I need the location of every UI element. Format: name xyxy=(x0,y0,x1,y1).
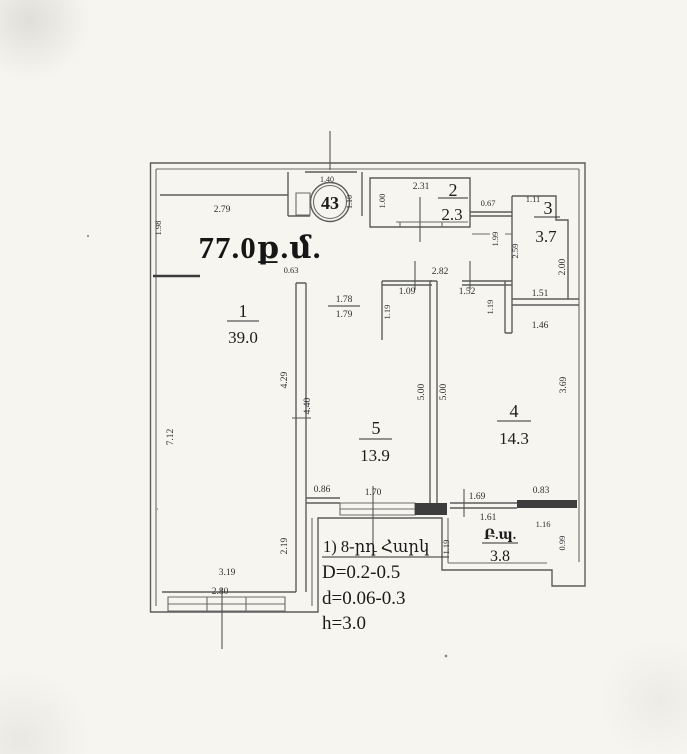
dim-balcony-left: 1.19 xyxy=(441,540,451,555)
dim-room4-bottom-right: 0.83 xyxy=(533,486,550,496)
dim-passage-right: 0.67 xyxy=(481,198,496,208)
dim-room5-bottom-left: 0.86 xyxy=(314,485,331,495)
dim-balcony-right: 0.99 xyxy=(557,536,567,551)
apartment-number: 43 xyxy=(321,193,339,213)
floor-plan: 43 77.0ք.մ. 1 39.0 2 2.3 3 3.7 4 14.3 5 … xyxy=(0,0,687,754)
dim-balcony-door-bottom: 1.61 xyxy=(480,513,497,523)
room3-area: 3.7 xyxy=(535,227,557,246)
room1-area: 39.0 xyxy=(228,328,258,347)
dim-room1-bottom: 3.19 xyxy=(219,568,236,578)
dim-door-width-a: 1.78 xyxy=(336,295,353,305)
room2-area: 2.3 xyxy=(441,205,462,224)
dim-room4-height: 5.00 xyxy=(439,383,449,400)
dim-room3-left-outer: 1.99 xyxy=(490,232,500,247)
dim-room2-left: 1.00 xyxy=(377,194,387,209)
note-d-upper: D=0.2-0.5 xyxy=(322,562,400,583)
dim-room1-top: 2.79 xyxy=(214,205,231,215)
room4-number: 4 xyxy=(510,401,519,421)
dim-room1-window: 2.80 xyxy=(212,587,229,597)
dim-balcony-top-right: 1.16 xyxy=(536,519,551,529)
dim-room5-height: 5.00 xyxy=(417,383,427,400)
dim-hall-width: 2.82 xyxy=(432,267,449,277)
room4-area: 14.3 xyxy=(499,429,529,448)
dim-room4-right: 3.69 xyxy=(559,376,569,393)
dim-room1-door: 0.63 xyxy=(284,265,299,275)
balcony-label: Բ.պ. xyxy=(484,527,516,542)
note-floor: 1) 8-րդ Հարկ xyxy=(323,537,429,556)
dim-room3-bottom: 1.51 xyxy=(532,289,549,299)
dim-door-width-b: 1.79 xyxy=(336,310,353,320)
total-area-title: 77.0ք.մ. xyxy=(199,230,322,265)
room1-number: 1 xyxy=(239,301,248,321)
dim-room5-window: 1.70 xyxy=(365,488,382,498)
dim-balcony-door-top: 1.69 xyxy=(469,492,486,502)
dim-room1-bottom-right: 2.19 xyxy=(280,537,290,554)
dim-left-wall: 7.12 xyxy=(166,428,176,445)
dim-room3-top: 1.11 xyxy=(526,194,541,204)
room2-number: 2 xyxy=(449,180,458,200)
dim-room4-top: 1.46 xyxy=(532,321,549,331)
dim-jamb-left: 1.19 xyxy=(382,305,392,320)
room5-number: 5 xyxy=(372,418,381,438)
dim-room3-right: 2.00 xyxy=(558,258,568,275)
dim-entry-side: 1.10 xyxy=(345,195,354,209)
dim-left-upper: 1.98 xyxy=(153,221,163,236)
notes-block: 1) 8-րդ Հարկ D=0.2-0.5 d=0.06-0.3 h=3.0 xyxy=(322,537,429,634)
dim-room3-left: 2.59 xyxy=(510,244,520,259)
room5-area: 13.9 xyxy=(360,446,390,465)
apartment-number-badge: 43 xyxy=(311,183,350,222)
dim-room5-left: 4.40 xyxy=(303,397,313,414)
dim-hall-seg-left: 1.09 xyxy=(399,287,416,297)
dim-jamb-right: 1.19 xyxy=(485,300,495,315)
balcony-area: 3.8 xyxy=(490,548,510,565)
dim-hall-seg-right: 1.52 xyxy=(459,287,476,297)
dim-room1-right: 4.29 xyxy=(280,371,290,388)
dim-room2-top: 2.31 xyxy=(413,182,430,192)
dim-entry-width: 1.40 xyxy=(320,175,334,184)
note-d-lower: d=0.06-0.3 xyxy=(322,588,406,609)
note-height: h=3.0 xyxy=(322,613,366,634)
room3-number: 3 xyxy=(544,198,553,218)
